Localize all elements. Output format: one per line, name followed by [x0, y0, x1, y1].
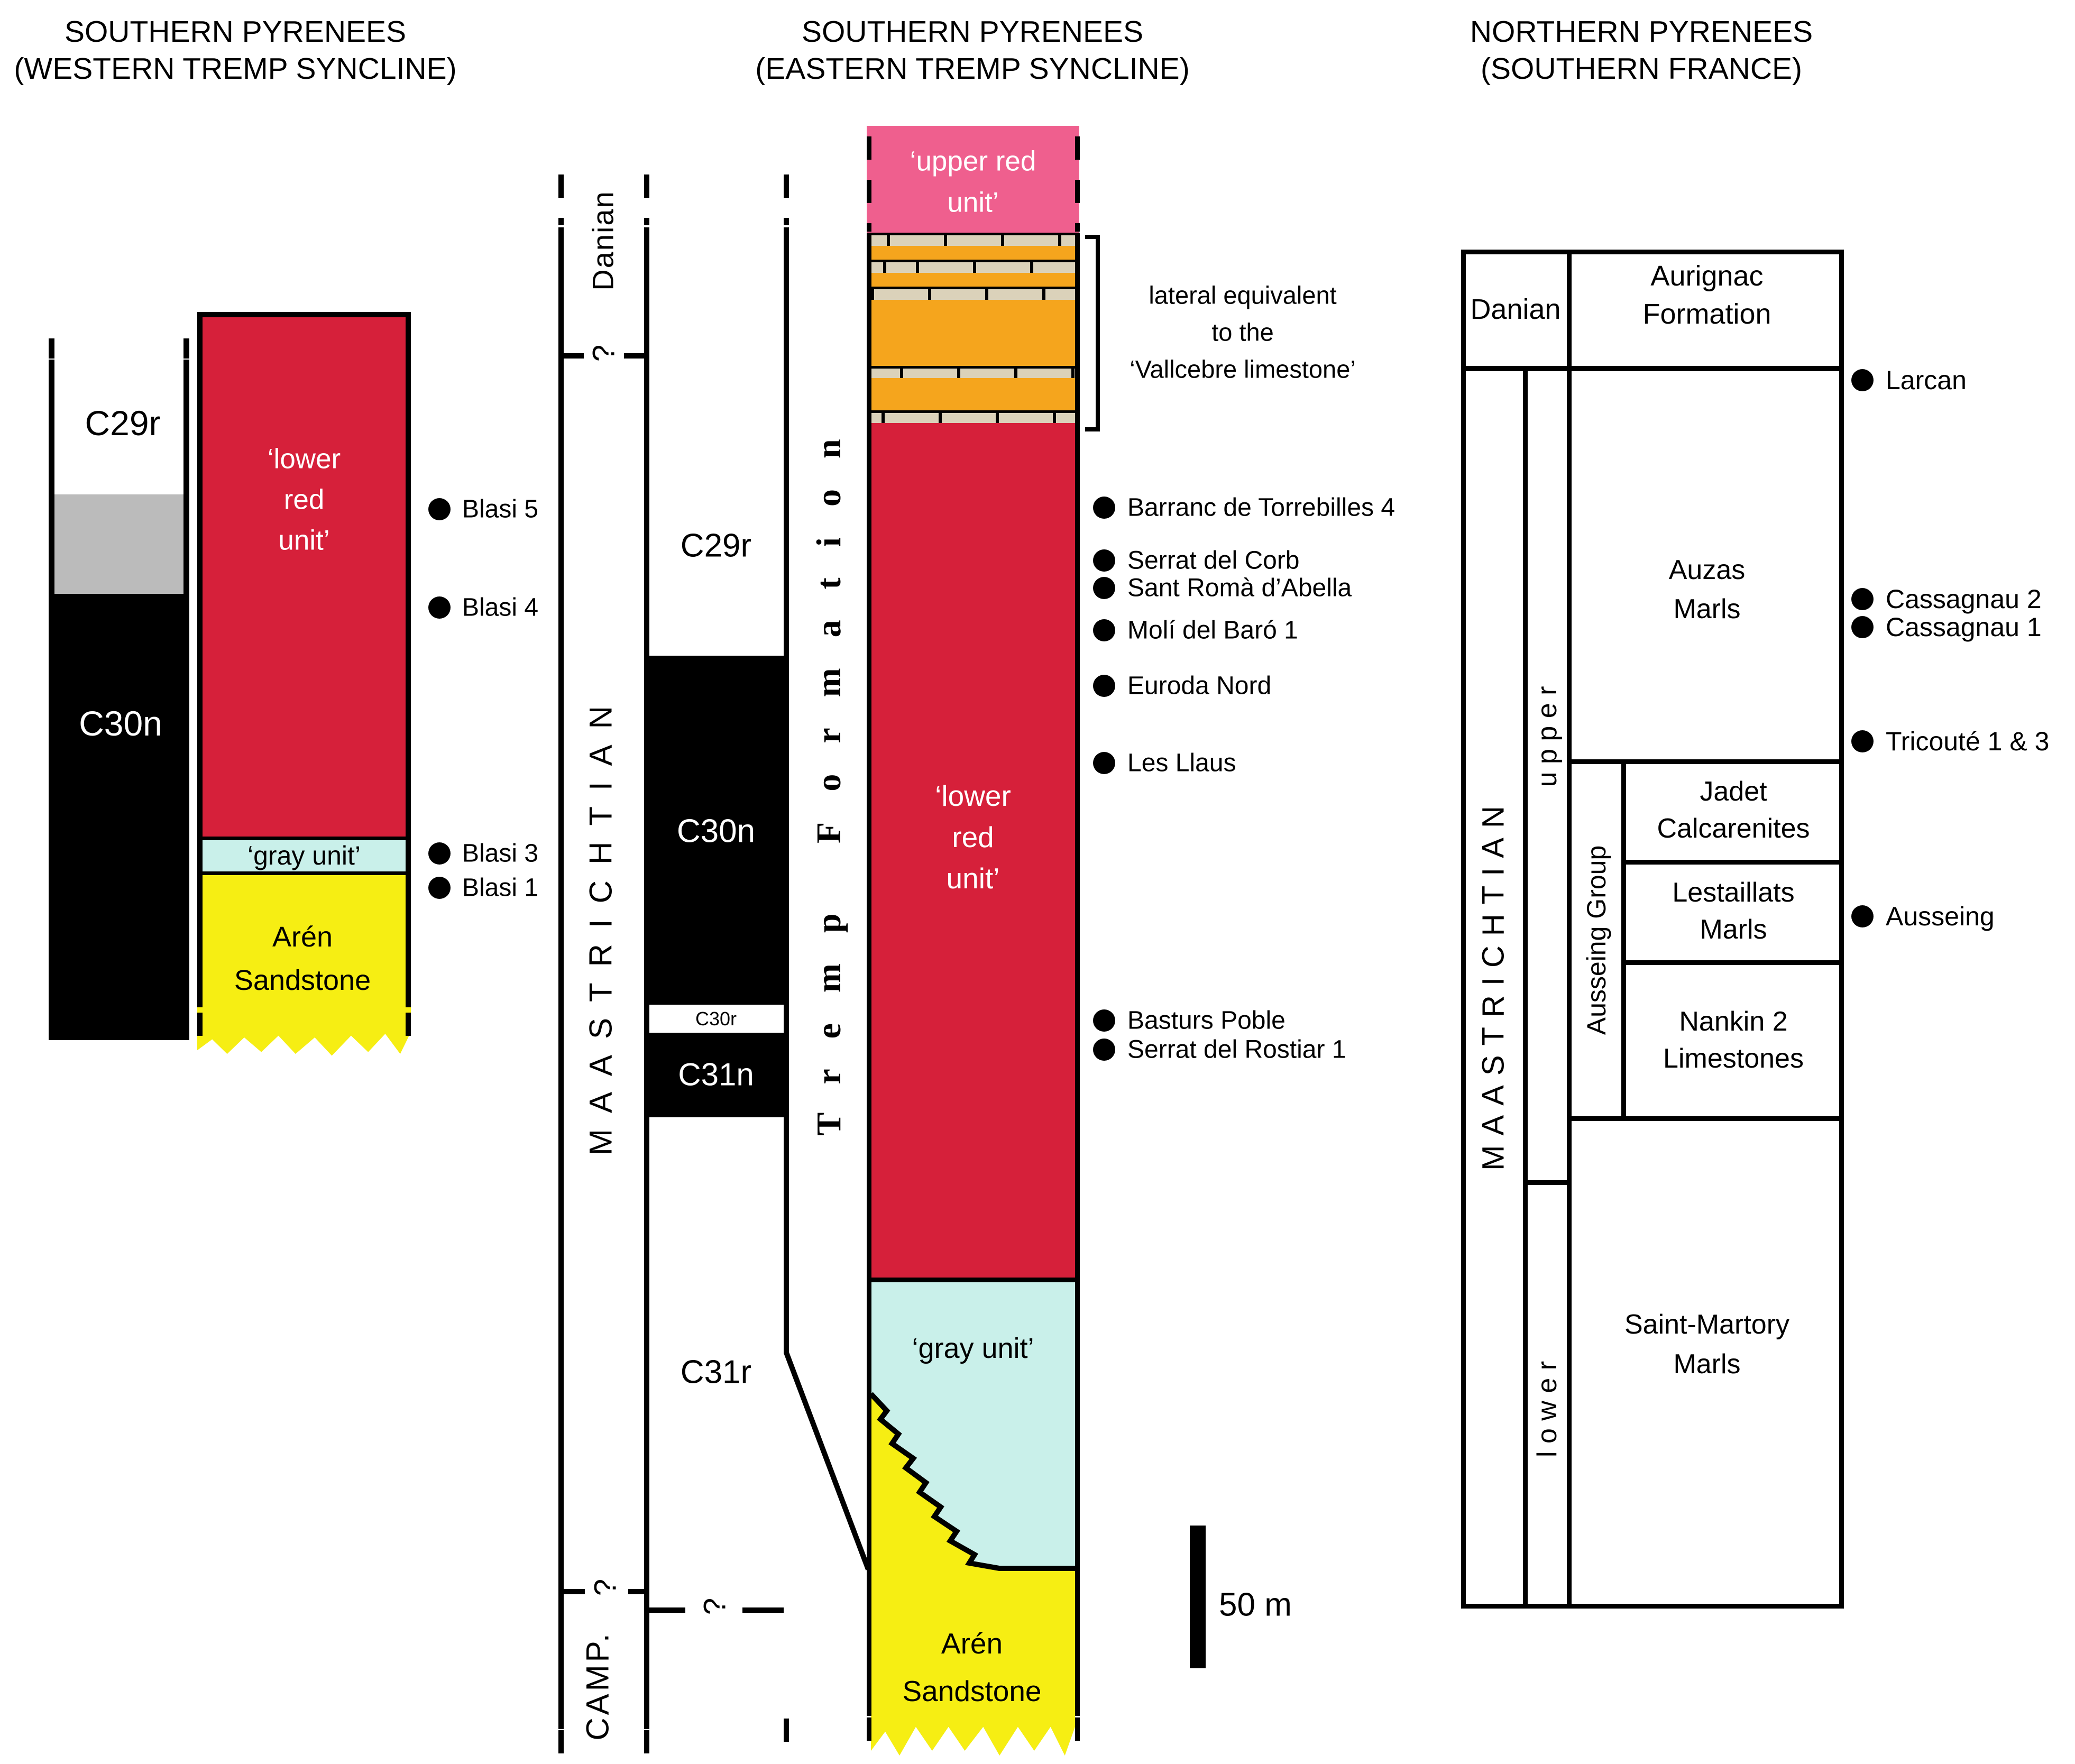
east-chron-c29r-label: C29r: [681, 527, 751, 565]
scale-bar: [1190, 1526, 1206, 1668]
west-aren-label-1: Arén: [272, 921, 333, 953]
east-mag-dash-bottom-right: [784, 1719, 789, 1750]
north-substage-upper-label: u p p e r: [1531, 686, 1563, 787]
west-litho-dash-right: [406, 1013, 411, 1051]
site-label-tricoute: Tricouté 1 & 3: [1886, 726, 2049, 757]
site-label-cassagnau2: Cassagnau 2: [1886, 584, 2042, 614]
north-line-jadet-bottom: [1621, 860, 1844, 865]
site-dot: [1851, 588, 1874, 610]
north-line-upper-lower-divider: [1523, 1180, 1572, 1185]
orange-band: [871, 300, 1075, 366]
north-unit-lestaillats-2: Marls: [1700, 914, 1767, 945]
west-litho-border-left: [197, 312, 203, 1007]
title-north-line2: (SOUTHERN FRANCE): [1481, 51, 1802, 86]
east-chron-c31n-label: C31n: [678, 1056, 754, 1093]
site-dot: [1093, 497, 1115, 519]
north-unit-aurignac-1: Aurignac: [1650, 260, 1763, 292]
east-mag-border-left: [644, 227, 649, 1729]
west-lower-red-label-1: ‘lower: [268, 443, 341, 475]
north-ausseing-group-label: Ausseing Group: [1581, 846, 1612, 1035]
west-lower-red-unit: [197, 315, 411, 837]
north-stage-danian-label: Danian: [1470, 293, 1560, 326]
site-label-rostiar: Serrat del Rostiar 1: [1127, 1035, 1346, 1064]
north-line-stage-strip: [1523, 369, 1528, 1606]
site-dot: [1851, 905, 1874, 927]
north-line-nankin-bottom: [1567, 1116, 1844, 1121]
north-line-auzas-bottom: [1567, 759, 1844, 764]
site-label-blasi4: Blasi 4: [462, 593, 538, 622]
east-qline3-b: [742, 1607, 784, 1613]
east-litho-dash-bottom-left: [867, 1717, 871, 1750]
west-chron-gray-band: [49, 494, 189, 594]
stratigraphic-correlation-diagram: SOUTHERN PYRENEES (WESTERN TREMP SYNCLIN…: [0, 0, 2075, 1764]
west-aren-label-2: Sandstone: [234, 964, 371, 997]
east-timescale-dash-top-left: [558, 174, 564, 225]
west-litho-border-right: [406, 312, 411, 1007]
bracket-note-line3: ‘Vallcebre limestone’: [1130, 355, 1356, 384]
north-chart-box: [1461, 250, 1844, 1609]
north-line-group-strip: [1621, 759, 1626, 1121]
east-chron-c30n-label: C30n: [677, 813, 755, 850]
east-timescale-dash-bottom-left: [558, 1730, 564, 1764]
site-label-euroda: Euroda Nord: [1127, 672, 1271, 701]
site-dot: [1093, 1039, 1115, 1061]
site-label-blasi3: Blasi 3: [462, 839, 538, 868]
east-upper-red-label-2: unit’: [947, 187, 998, 219]
title-east-line2: (EASTERN TREMP SYNCLINE): [755, 51, 1189, 86]
east-question-mark-3: ?: [697, 1598, 733, 1615]
east-timescale-border-left: [558, 227, 564, 1729]
site-dot: [428, 498, 451, 520]
east-litho-dash-bottom-right: [1075, 1717, 1080, 1750]
west-litho-top-edge: [197, 312, 411, 317]
north-unit-auzas-2: Marls: [1673, 593, 1740, 625]
north-substage-lower-label: l o w e r: [1531, 1361, 1563, 1457]
east-stage-maastrichtian-label: MAASTRICHTIAN: [583, 690, 619, 1155]
east-litho-dash-top-left: [867, 136, 871, 232]
east-lower-red-label-3: unit’: [947, 861, 1000, 895]
east-upper-red-label-1: ‘upper red: [910, 145, 1036, 178]
site-label-sant-roma: Sant Romà d’Abella: [1127, 574, 1352, 603]
title-north-line1: NORTHERN PYRENEES: [1470, 14, 1813, 49]
east-lower-red-label-2: red: [952, 820, 994, 854]
east-mag-border-right: [784, 227, 789, 1354]
east-aren-label-1: Arén: [941, 1627, 1003, 1660]
north-unit-aurignac-2: Formation: [1642, 298, 1771, 330]
west-lower-red-label-3: unit’: [278, 525, 329, 557]
orange-band: [871, 378, 1075, 410]
east-litho-dash-top-right: [1075, 136, 1080, 232]
site-label-basturs: Basturs Poble: [1127, 1006, 1286, 1035]
site-dot: [1093, 619, 1115, 641]
east-chron-c30r-label: C30r: [695, 1008, 737, 1030]
west-chron-c29r-label: C29r: [85, 403, 160, 443]
site-label-larcan: Larcan: [1886, 365, 1967, 396]
east-litho-border-left: [867, 233, 871, 1716]
west-mag-dash-right: [183, 338, 189, 359]
east-formation-label: Tremp Formation: [809, 408, 849, 1135]
bracket-note-line1: lateral equivalent: [1149, 281, 1336, 310]
orange-band: [871, 246, 1075, 260]
east-litho-border-right: [1075, 233, 1080, 1716]
title-west-line1: SOUTHERN PYRENEES: [65, 14, 406, 49]
east-qline3-a: [648, 1607, 685, 1613]
site-label-serrat-corb: Serrat del Corb: [1127, 546, 1299, 575]
site-label-blasi5: Blasi 5: [462, 495, 538, 524]
title-east-line1: SOUTHERN PYRENEES: [802, 14, 1143, 49]
north-unit-saint-martory-1: Saint-Martory: [1624, 1309, 1789, 1340]
orange-band: [871, 273, 1075, 287]
site-dot: [428, 596, 451, 619]
west-mag-border-right: [183, 360, 189, 1040]
site-dot: [1093, 577, 1115, 599]
east-mag-dash-top-right: [784, 174, 789, 225]
north-unit-lestaillats-1: Lestaillats: [1672, 877, 1794, 908]
scale-bar-label: 50 m: [1219, 1586, 1292, 1624]
east-qline1-a: [558, 353, 584, 359]
site-dot: [1851, 369, 1874, 391]
site-dot: [428, 842, 451, 865]
title-west-line2: (WESTERN TREMP SYNCLINE): [14, 51, 456, 86]
east-aren-label-2: Sandstone: [903, 1674, 1042, 1708]
west-chron-c30n-region: [49, 594, 189, 1040]
east-lower-red-label-1: ‘lower: [935, 779, 1011, 813]
site-dot: [1851, 616, 1874, 638]
north-stage-maastrichtian-label: MAASTRICHTIAN: [1476, 796, 1511, 1171]
north-line-danian-bottom: [1461, 366, 1844, 371]
site-label-barranc: Barranc de Torrebilles 4: [1127, 493, 1395, 522]
site-label-ausseing: Ausseing: [1886, 901, 1995, 932]
vallcebre-bracket: [1085, 235, 1100, 431]
north-unit-nankin-1: Nankin 2: [1679, 1006, 1787, 1037]
site-dot: [1093, 675, 1115, 697]
west-mag-dash-left: [49, 338, 54, 359]
west-mag-border-left: [49, 360, 54, 1040]
north-unit-jadet-1: Jadet: [1700, 776, 1767, 807]
north-line-lestaillats-bottom: [1621, 960, 1844, 965]
west-chron-c30n-label: C30n: [79, 703, 162, 743]
east-mag-dash-top-left: [644, 174, 649, 225]
east-qline2-a: [558, 1589, 585, 1594]
north-unit-nankin-2: Limestones: [1663, 1043, 1804, 1074]
west-litho-dash-left: [197, 1013, 203, 1051]
site-dot: [1093, 549, 1115, 572]
east-question-mark-2: ?: [588, 1579, 623, 1596]
east-stage-campanian-label: CAMP.: [580, 1631, 616, 1740]
site-label-blasi1: Blasi 1: [462, 874, 538, 903]
east-upper-red-unit: [867, 126, 1079, 235]
east-gray-unit-label: ‘gray unit’: [912, 1332, 1034, 1365]
east-question-mark-1: ?: [586, 345, 622, 362]
north-line-substage-strip: [1567, 250, 1572, 1606]
site-dot: [1093, 752, 1115, 774]
site-dot: [1093, 1009, 1115, 1032]
site-dot: [1851, 730, 1874, 752]
east-chron-c31r-label: C31r: [681, 1354, 751, 1391]
north-unit-saint-martory-2: Marls: [1673, 1348, 1740, 1380]
site-label-cassagnau1: Cassagnau 1: [1886, 612, 2042, 642]
site-label-les-llaus: Les Llaus: [1127, 749, 1236, 778]
east-stage-danian-label: Danian: [586, 190, 620, 290]
west-gray-unit-label: ‘gray unit’: [247, 840, 361, 871]
east-mag-dash-bottom-left: [644, 1730, 649, 1764]
site-label-moli: Molí del Baró 1: [1127, 616, 1298, 645]
bracket-note-line2: to the: [1211, 318, 1274, 347]
north-unit-jadet-2: Calcarenites: [1657, 813, 1810, 844]
north-unit-auzas-1: Auzas: [1669, 554, 1746, 586]
west-lower-red-label-2: red: [284, 484, 325, 516]
site-dot: [428, 877, 451, 899]
